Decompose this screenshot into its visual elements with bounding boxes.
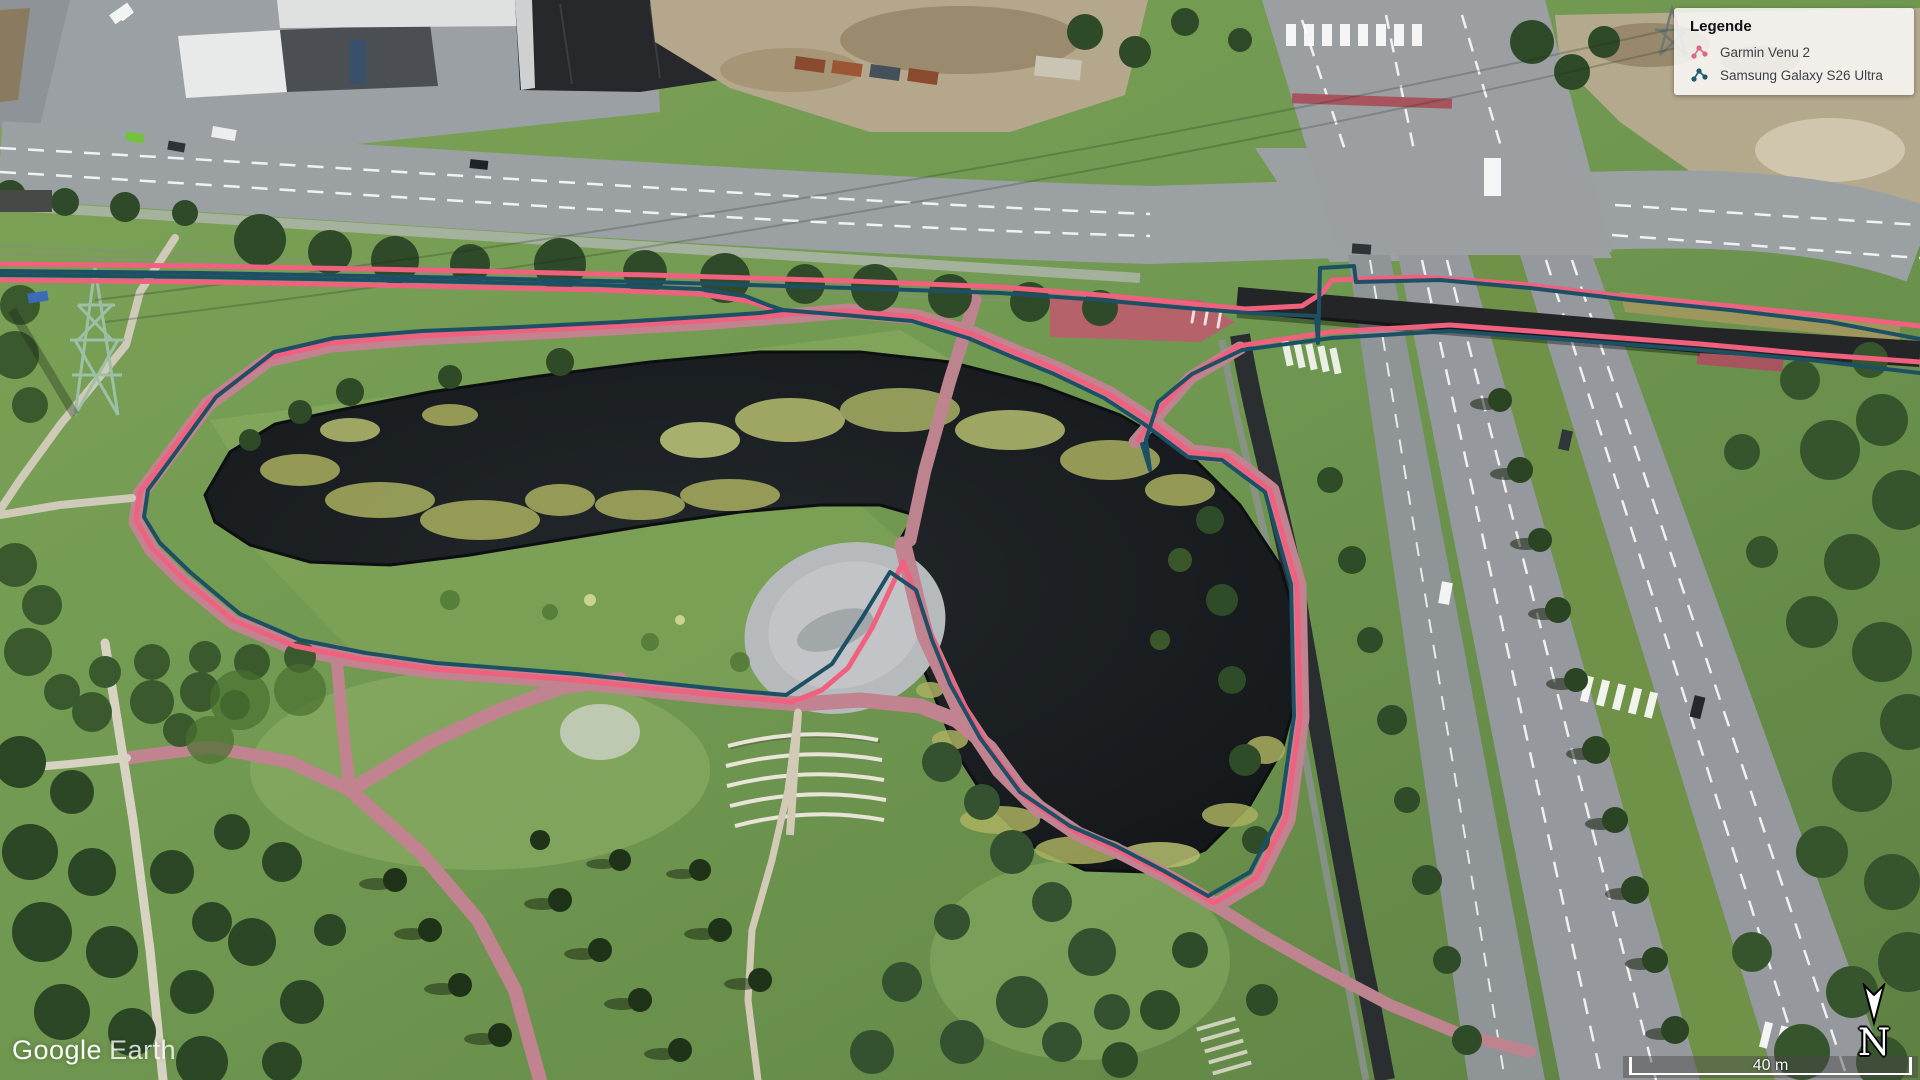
google-earth-logo: GoogleEarth — [12, 1035, 176, 1066]
google-logo-text: Google — [12, 1035, 102, 1065]
track-nodes-icon — [1690, 44, 1710, 60]
earth-logo-text: Earth — [109, 1035, 176, 1065]
legend-item-label: Samsung Galaxy S26 Ultra — [1720, 68, 1883, 83]
legend-item-label: Garmin Venu 2 — [1720, 45, 1810, 60]
map-canvas[interactable] — [0, 0, 1920, 1080]
satellite-imagery — [0, 0, 1920, 1080]
legend-item-samsung: Samsung Galaxy S26 Ultra — [1690, 67, 1902, 83]
legend-panel: Legende Garmin Venu 2 Samsung Galaxy S26… — [1674, 8, 1914, 95]
north-arrow-icon — [1861, 983, 1887, 1027]
google-earth-window: Legende Garmin Venu 2 Samsung Galaxy S26… — [0, 0, 1920, 1080]
flowering-bush — [560, 704, 640, 760]
north-indicator: N — [1854, 983, 1894, 1058]
track-nodes-icon — [1690, 67, 1710, 83]
legend-title: Legende — [1690, 18, 1902, 35]
north-label: N — [1854, 1027, 1894, 1058]
legend-item-garmin: Garmin Venu 2 — [1690, 44, 1902, 60]
